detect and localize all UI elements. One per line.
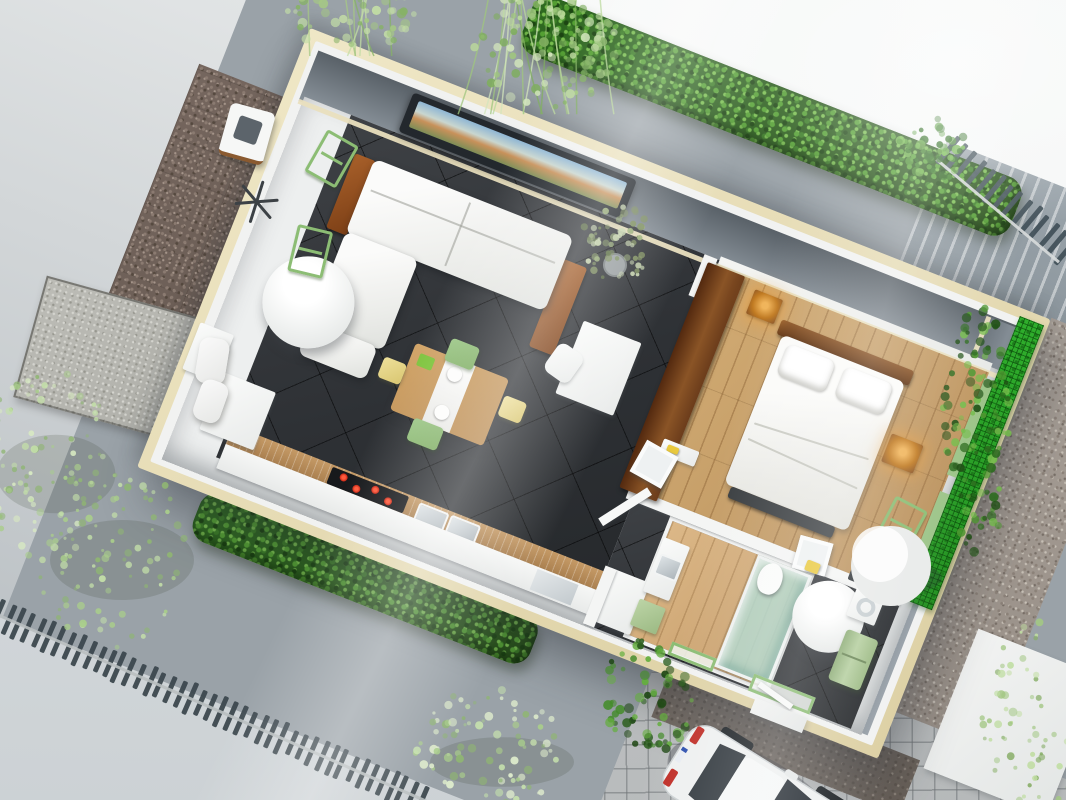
foliage-leaf xyxy=(313,0,323,4)
foliage-leaf xyxy=(171,576,175,580)
foliage-leaf xyxy=(86,434,89,437)
foliage-leaf xyxy=(321,8,330,17)
foliage-leaf xyxy=(88,480,95,487)
foliage-leaf xyxy=(163,613,167,617)
foliage-leaf xyxy=(494,79,502,87)
foliage-leaf xyxy=(60,555,67,562)
foliage-leaf xyxy=(480,34,484,38)
willow-strand xyxy=(389,0,392,56)
foliage-leaf xyxy=(72,544,79,551)
foliage-leaf xyxy=(346,19,353,26)
foliage-leaf xyxy=(402,26,409,33)
foliage-leaf xyxy=(90,481,94,485)
foliage-leaf xyxy=(433,729,439,735)
foliage-leaf xyxy=(609,659,614,664)
foliage-leaf xyxy=(50,543,58,551)
foliage-leaf xyxy=(75,481,78,484)
foliage-leaf xyxy=(122,557,126,561)
foliage-leaf xyxy=(429,719,436,726)
foliage-leaf xyxy=(56,615,61,620)
foliage-leaf xyxy=(443,780,448,785)
foliage-leaf xyxy=(523,98,530,105)
foliage-leaf xyxy=(78,478,82,482)
foliage-leaf xyxy=(59,511,64,516)
foliage-leaf xyxy=(459,772,465,778)
foliage-leaf xyxy=(486,68,491,73)
foliage-leaf xyxy=(98,495,102,499)
foliage-leaf xyxy=(522,711,529,718)
foliage-leaf xyxy=(157,574,163,580)
foliage-leaf xyxy=(435,718,440,723)
foliage-leaf xyxy=(296,5,301,10)
foliage-leaf xyxy=(462,716,466,720)
foliage-leaf xyxy=(60,561,68,569)
foliage-leaf xyxy=(384,30,391,37)
foliage-leaf xyxy=(76,509,79,512)
foliage-leaf xyxy=(167,552,173,558)
foliage-leaf xyxy=(76,584,80,588)
foliage-leaf xyxy=(493,13,500,20)
foliage-leaf xyxy=(445,720,452,727)
foliage-leaf xyxy=(298,0,306,2)
foliage-leaf xyxy=(487,78,496,87)
foliage-leaf xyxy=(154,556,160,562)
foliage-leaf xyxy=(516,24,520,28)
foliage-leaf xyxy=(513,709,516,712)
foliage-leaf xyxy=(148,497,153,502)
foliage-leaf xyxy=(494,72,500,78)
foliage-leaf xyxy=(511,700,518,707)
foliage-leaf xyxy=(420,760,429,769)
foliage-leaf xyxy=(39,556,46,563)
foliage-leaf xyxy=(615,705,624,714)
foliage-leaf xyxy=(46,539,53,546)
foliage-leaf xyxy=(464,723,467,726)
foliage-leaf xyxy=(613,721,618,726)
foliage-leaf xyxy=(509,52,516,59)
foliage-leaf xyxy=(87,535,92,540)
foliage-leaf xyxy=(561,86,568,93)
foliage-leaf xyxy=(518,16,523,21)
foliage-leaf xyxy=(53,538,59,544)
foliage-leaf xyxy=(372,6,381,15)
foliage-leaf xyxy=(511,28,518,35)
foliage-leaf xyxy=(381,0,389,5)
foliage-leaf xyxy=(621,667,626,672)
foliage-leaf xyxy=(512,716,517,721)
foliage-leaf xyxy=(370,22,378,30)
foliage-leaf xyxy=(88,455,93,460)
foliage-leaf xyxy=(527,785,532,790)
foliage-leaf xyxy=(475,721,483,729)
willow-strand xyxy=(491,0,506,114)
foliage-leaf xyxy=(515,734,521,740)
foliage-leaf xyxy=(385,36,394,45)
foliage-leaf xyxy=(506,790,514,798)
foliage-leaf xyxy=(135,545,142,552)
foliage-leaf xyxy=(147,558,153,564)
armchair-cushion xyxy=(233,115,264,146)
foliage-leaf xyxy=(113,474,116,477)
foliage-leaf xyxy=(450,693,456,699)
foliage-leaf xyxy=(574,90,579,95)
foliage-leaf xyxy=(458,697,463,702)
foliage-leaf xyxy=(608,716,615,723)
foliage-leaf xyxy=(104,551,111,558)
foliage-leaf xyxy=(548,716,554,722)
foliage-leaf xyxy=(566,89,575,98)
foliage-leaf xyxy=(141,634,146,639)
foliage-leaf xyxy=(455,750,461,756)
foliage-leaf xyxy=(524,766,532,774)
foliage-leaf xyxy=(540,749,548,757)
foliage-leaf xyxy=(538,789,544,795)
foliage-leaf xyxy=(109,622,115,628)
foliage-leaf xyxy=(92,469,99,476)
foliage-leaf xyxy=(495,789,503,797)
foliage-leaf xyxy=(164,610,168,614)
foliage-leaf xyxy=(484,793,488,797)
foliage-leaf xyxy=(1033,636,1038,641)
foliage-leaf xyxy=(413,746,421,754)
foliage-leaf xyxy=(99,575,106,582)
foliage-leaf xyxy=(387,30,395,38)
foliage-leaf xyxy=(128,478,133,483)
foliage-leaf xyxy=(603,700,613,710)
foliage-leaf xyxy=(507,44,515,52)
foliage-leaf xyxy=(498,686,506,694)
foliage-leaf xyxy=(551,733,558,740)
chair-rung xyxy=(321,151,343,165)
foliage-leaf xyxy=(535,90,541,96)
burner-icon xyxy=(338,472,348,482)
tree-shadow xyxy=(50,520,194,600)
foliage-leaf xyxy=(506,92,516,102)
foliage-leaf xyxy=(79,620,87,628)
foliage-leaf xyxy=(119,611,126,618)
foliage-leaf xyxy=(151,490,155,494)
foliage-leaf xyxy=(74,521,80,527)
foliage-leaf xyxy=(553,757,559,763)
foliage-leaf xyxy=(448,718,457,727)
foliage-leaf xyxy=(484,712,493,721)
foliage-leaf xyxy=(548,749,552,753)
foliage-leaf xyxy=(151,528,154,531)
foliage-leaf xyxy=(124,549,132,557)
foliage-leaf xyxy=(94,524,97,527)
foliage-leaf xyxy=(500,696,504,700)
foliage-leaf xyxy=(85,515,92,522)
foliage-leaf xyxy=(65,465,69,469)
foliage-leaf xyxy=(607,675,616,684)
foliage-leaf xyxy=(144,584,148,588)
foliage-leaf xyxy=(51,534,54,537)
foliage-leaf xyxy=(511,69,520,78)
foliage-leaf xyxy=(444,753,453,762)
foliage-leaf xyxy=(496,747,503,754)
foliage-leaf xyxy=(165,510,170,515)
foliage-leaf xyxy=(490,51,496,57)
foliage-leaf xyxy=(518,774,525,781)
foliage-leaf xyxy=(360,2,367,9)
foliage-leaf xyxy=(143,488,148,493)
foliage-leaf xyxy=(605,718,615,728)
foliage-leaf xyxy=(81,496,87,502)
foliage-leaf xyxy=(297,11,302,16)
foliage-leaf xyxy=(513,796,519,800)
fridge-handle xyxy=(842,652,867,663)
foliage-leaf xyxy=(69,470,75,476)
foliage-leaf xyxy=(538,724,544,730)
foliage-leaf xyxy=(74,464,81,471)
foliage-leaf xyxy=(112,512,118,518)
foliage-leaf xyxy=(541,80,548,87)
foliage-leaf xyxy=(298,18,308,28)
foliage-leaf xyxy=(429,745,438,754)
foliage-leaf xyxy=(479,32,485,38)
foliage-leaf xyxy=(124,484,131,491)
tree-bottom-center xyxy=(413,686,574,800)
foliage-leaf xyxy=(457,743,464,750)
foliage-leaf xyxy=(512,721,519,728)
foliage-leaf xyxy=(67,477,75,485)
foliage-leaf xyxy=(506,17,515,26)
foliage-leaf xyxy=(58,608,62,612)
foliage-leaf xyxy=(110,496,117,503)
foliage-leaf xyxy=(139,482,147,490)
foliage-leaf xyxy=(79,519,86,526)
foliage-leaf xyxy=(60,571,64,575)
foliage-leaf xyxy=(379,25,384,30)
foliage-leaf xyxy=(456,755,464,763)
foliage-leaf xyxy=(92,503,99,510)
foliage-leaf xyxy=(499,764,505,770)
foliage-leaf xyxy=(446,781,454,789)
foliage-leaf xyxy=(67,527,73,533)
foliage-leaf xyxy=(364,18,369,23)
foliage-leaf xyxy=(609,700,616,707)
foliage-leaf xyxy=(129,633,134,638)
cushion-seam xyxy=(444,202,471,266)
foliage-leaf xyxy=(297,24,304,31)
foliage-leaf xyxy=(390,25,396,31)
foliage-leaf xyxy=(39,575,43,579)
foliage-leaf xyxy=(113,473,118,478)
foliage-leaf xyxy=(479,777,488,786)
foliage-leaf xyxy=(115,645,120,650)
foliage-leaf xyxy=(514,59,523,68)
foliage-leaf xyxy=(299,0,308,5)
foliage-leaf xyxy=(563,100,567,104)
foliage-leaf xyxy=(543,739,551,747)
foliage-leaf xyxy=(450,772,458,780)
foliage-leaf xyxy=(493,730,501,738)
foliage-leaf xyxy=(168,497,173,502)
foliage-leaf xyxy=(512,0,520,2)
foliage-leaf xyxy=(71,537,75,541)
foliage-leaf xyxy=(541,744,545,748)
foliage-leaf xyxy=(537,791,540,794)
lounger-back xyxy=(194,336,231,386)
foliage-leaf xyxy=(373,10,378,15)
foliage-leaf xyxy=(174,521,182,529)
foliage-leaf xyxy=(92,564,96,568)
foliage-leaf xyxy=(470,43,478,51)
foliage-leaf xyxy=(511,778,516,783)
foliage-leaf xyxy=(89,583,94,588)
foliage-leaf xyxy=(531,84,541,94)
foliage-leaf xyxy=(518,739,525,746)
foliage-leaf xyxy=(1036,618,1044,626)
burner-icon xyxy=(370,485,380,495)
foliage-leaf xyxy=(41,590,46,595)
foliage-leaf xyxy=(521,785,525,789)
foliage-leaf xyxy=(473,701,476,704)
foliage-leaf xyxy=(468,744,477,753)
willow-strand xyxy=(493,0,517,114)
foliage-leaf xyxy=(500,0,510,4)
foliage-leaf xyxy=(486,696,490,700)
foliage-leaf xyxy=(539,709,544,714)
foliage-leaf xyxy=(442,733,447,738)
foliage-leaf xyxy=(293,9,298,14)
foliage-leaf xyxy=(390,7,397,14)
foliage-leaf xyxy=(101,549,104,552)
foliage-leaf xyxy=(482,719,485,722)
foliage-leaf xyxy=(534,714,539,719)
foliage-leaf xyxy=(100,617,107,624)
foliage-leaf xyxy=(63,537,66,540)
foliage-leaf xyxy=(518,16,523,21)
foliage-leaf xyxy=(63,476,67,480)
foliage-leaf xyxy=(81,501,86,506)
foliage-leaf xyxy=(588,90,595,97)
foliage-leaf xyxy=(125,562,132,569)
foliage-leaf xyxy=(467,721,471,725)
foliage-leaf xyxy=(465,704,470,709)
foliage-leaf xyxy=(547,66,554,73)
chair-rung xyxy=(890,518,913,532)
foliage-leaf xyxy=(500,9,508,17)
foliage-leaf xyxy=(411,11,417,17)
foliage-leaf xyxy=(159,583,163,587)
foliage-leaf xyxy=(391,37,397,43)
foliage-leaf xyxy=(144,627,150,633)
foliage-leaf xyxy=(59,532,63,536)
foliage-leaf xyxy=(62,596,69,603)
willow-strand xyxy=(363,0,369,56)
foliage-leaf xyxy=(397,9,407,19)
foliage-leaf xyxy=(541,84,548,91)
willow-strand xyxy=(521,0,523,114)
foliage-leaf xyxy=(70,450,76,456)
foliage-leaf xyxy=(517,0,522,5)
foliage-leaf xyxy=(451,731,458,738)
foliage-leaf xyxy=(498,777,505,784)
tree-bottom-left xyxy=(36,453,194,650)
foliage-leaf xyxy=(508,0,515,4)
foliage-leaf xyxy=(180,535,187,542)
foliage-leaf xyxy=(57,512,63,518)
foliage-leaf xyxy=(103,484,106,487)
foliage-leaf xyxy=(73,481,78,486)
foliage-leaf xyxy=(413,750,419,756)
foliage-leaf xyxy=(98,453,101,456)
foliage-leaf xyxy=(499,778,503,782)
foliage-leaf xyxy=(143,495,148,500)
foliage-leaf xyxy=(510,756,518,764)
foliage-leaf xyxy=(63,517,68,522)
foliage-leaf xyxy=(118,483,122,487)
foliage-leaf xyxy=(530,739,537,746)
foliage-leaf xyxy=(624,703,634,713)
foliage-leaf xyxy=(387,7,394,14)
foliage-leaf xyxy=(71,475,75,479)
foliage-leaf xyxy=(63,602,69,608)
foliage-leaf xyxy=(114,496,120,502)
willow-strand xyxy=(501,0,510,114)
foliage-leaf xyxy=(588,87,594,93)
foliage-leaf xyxy=(147,539,152,544)
foliage-leaf xyxy=(509,23,518,32)
foliage-leaf xyxy=(510,0,518,1)
foliage-leaf xyxy=(73,494,80,501)
foliage-leaf xyxy=(95,608,101,614)
foliage-leaf xyxy=(1035,633,1039,637)
aerial-house-render: Aerial 3D architectural rendering of a s… xyxy=(0,0,1066,800)
foliage-leaf xyxy=(605,666,614,675)
washer-door-ring xyxy=(854,595,879,620)
burner-icon xyxy=(351,484,361,494)
foliage-leaf xyxy=(447,753,450,756)
pavement-bottom-left xyxy=(0,617,652,800)
foliage-leaf xyxy=(523,745,527,749)
foliage-leaf xyxy=(64,624,70,630)
burner-icon xyxy=(383,496,393,506)
foliage-leaf xyxy=(511,13,517,19)
duvet-fold xyxy=(748,438,858,490)
foliage-leaf xyxy=(95,557,100,562)
foliage-leaf xyxy=(285,8,291,14)
foliage-leaf xyxy=(486,757,494,765)
foliage-leaf xyxy=(612,710,619,717)
foliage-leaf xyxy=(339,15,347,23)
foliage-leaf xyxy=(173,569,180,576)
foliage-leaf xyxy=(516,777,520,781)
foliage-leaf xyxy=(357,21,362,26)
foliage-leaf xyxy=(68,554,73,559)
foliage-leaf xyxy=(100,454,106,460)
foliage-leaf xyxy=(77,602,85,610)
foliage-leaf xyxy=(118,528,124,534)
foliage-leaf xyxy=(432,711,435,714)
foliage-leaf xyxy=(610,663,616,669)
foliage-leaf xyxy=(570,77,576,83)
foliage-leaf xyxy=(480,33,488,41)
lime-placemat xyxy=(416,353,436,371)
foliage-leaf xyxy=(110,539,114,543)
foliage-leaf xyxy=(419,741,423,745)
foliage-leaf xyxy=(331,18,340,27)
foliage-leaf xyxy=(80,622,86,628)
foliage-leaf xyxy=(162,482,169,489)
foliage-leaf xyxy=(610,700,614,704)
foliage-leaf xyxy=(442,720,450,728)
foliage-leaf xyxy=(431,767,435,771)
foliage-leaf xyxy=(101,554,109,562)
foliage-leaf xyxy=(436,746,439,749)
foliage-leaf xyxy=(553,104,559,110)
